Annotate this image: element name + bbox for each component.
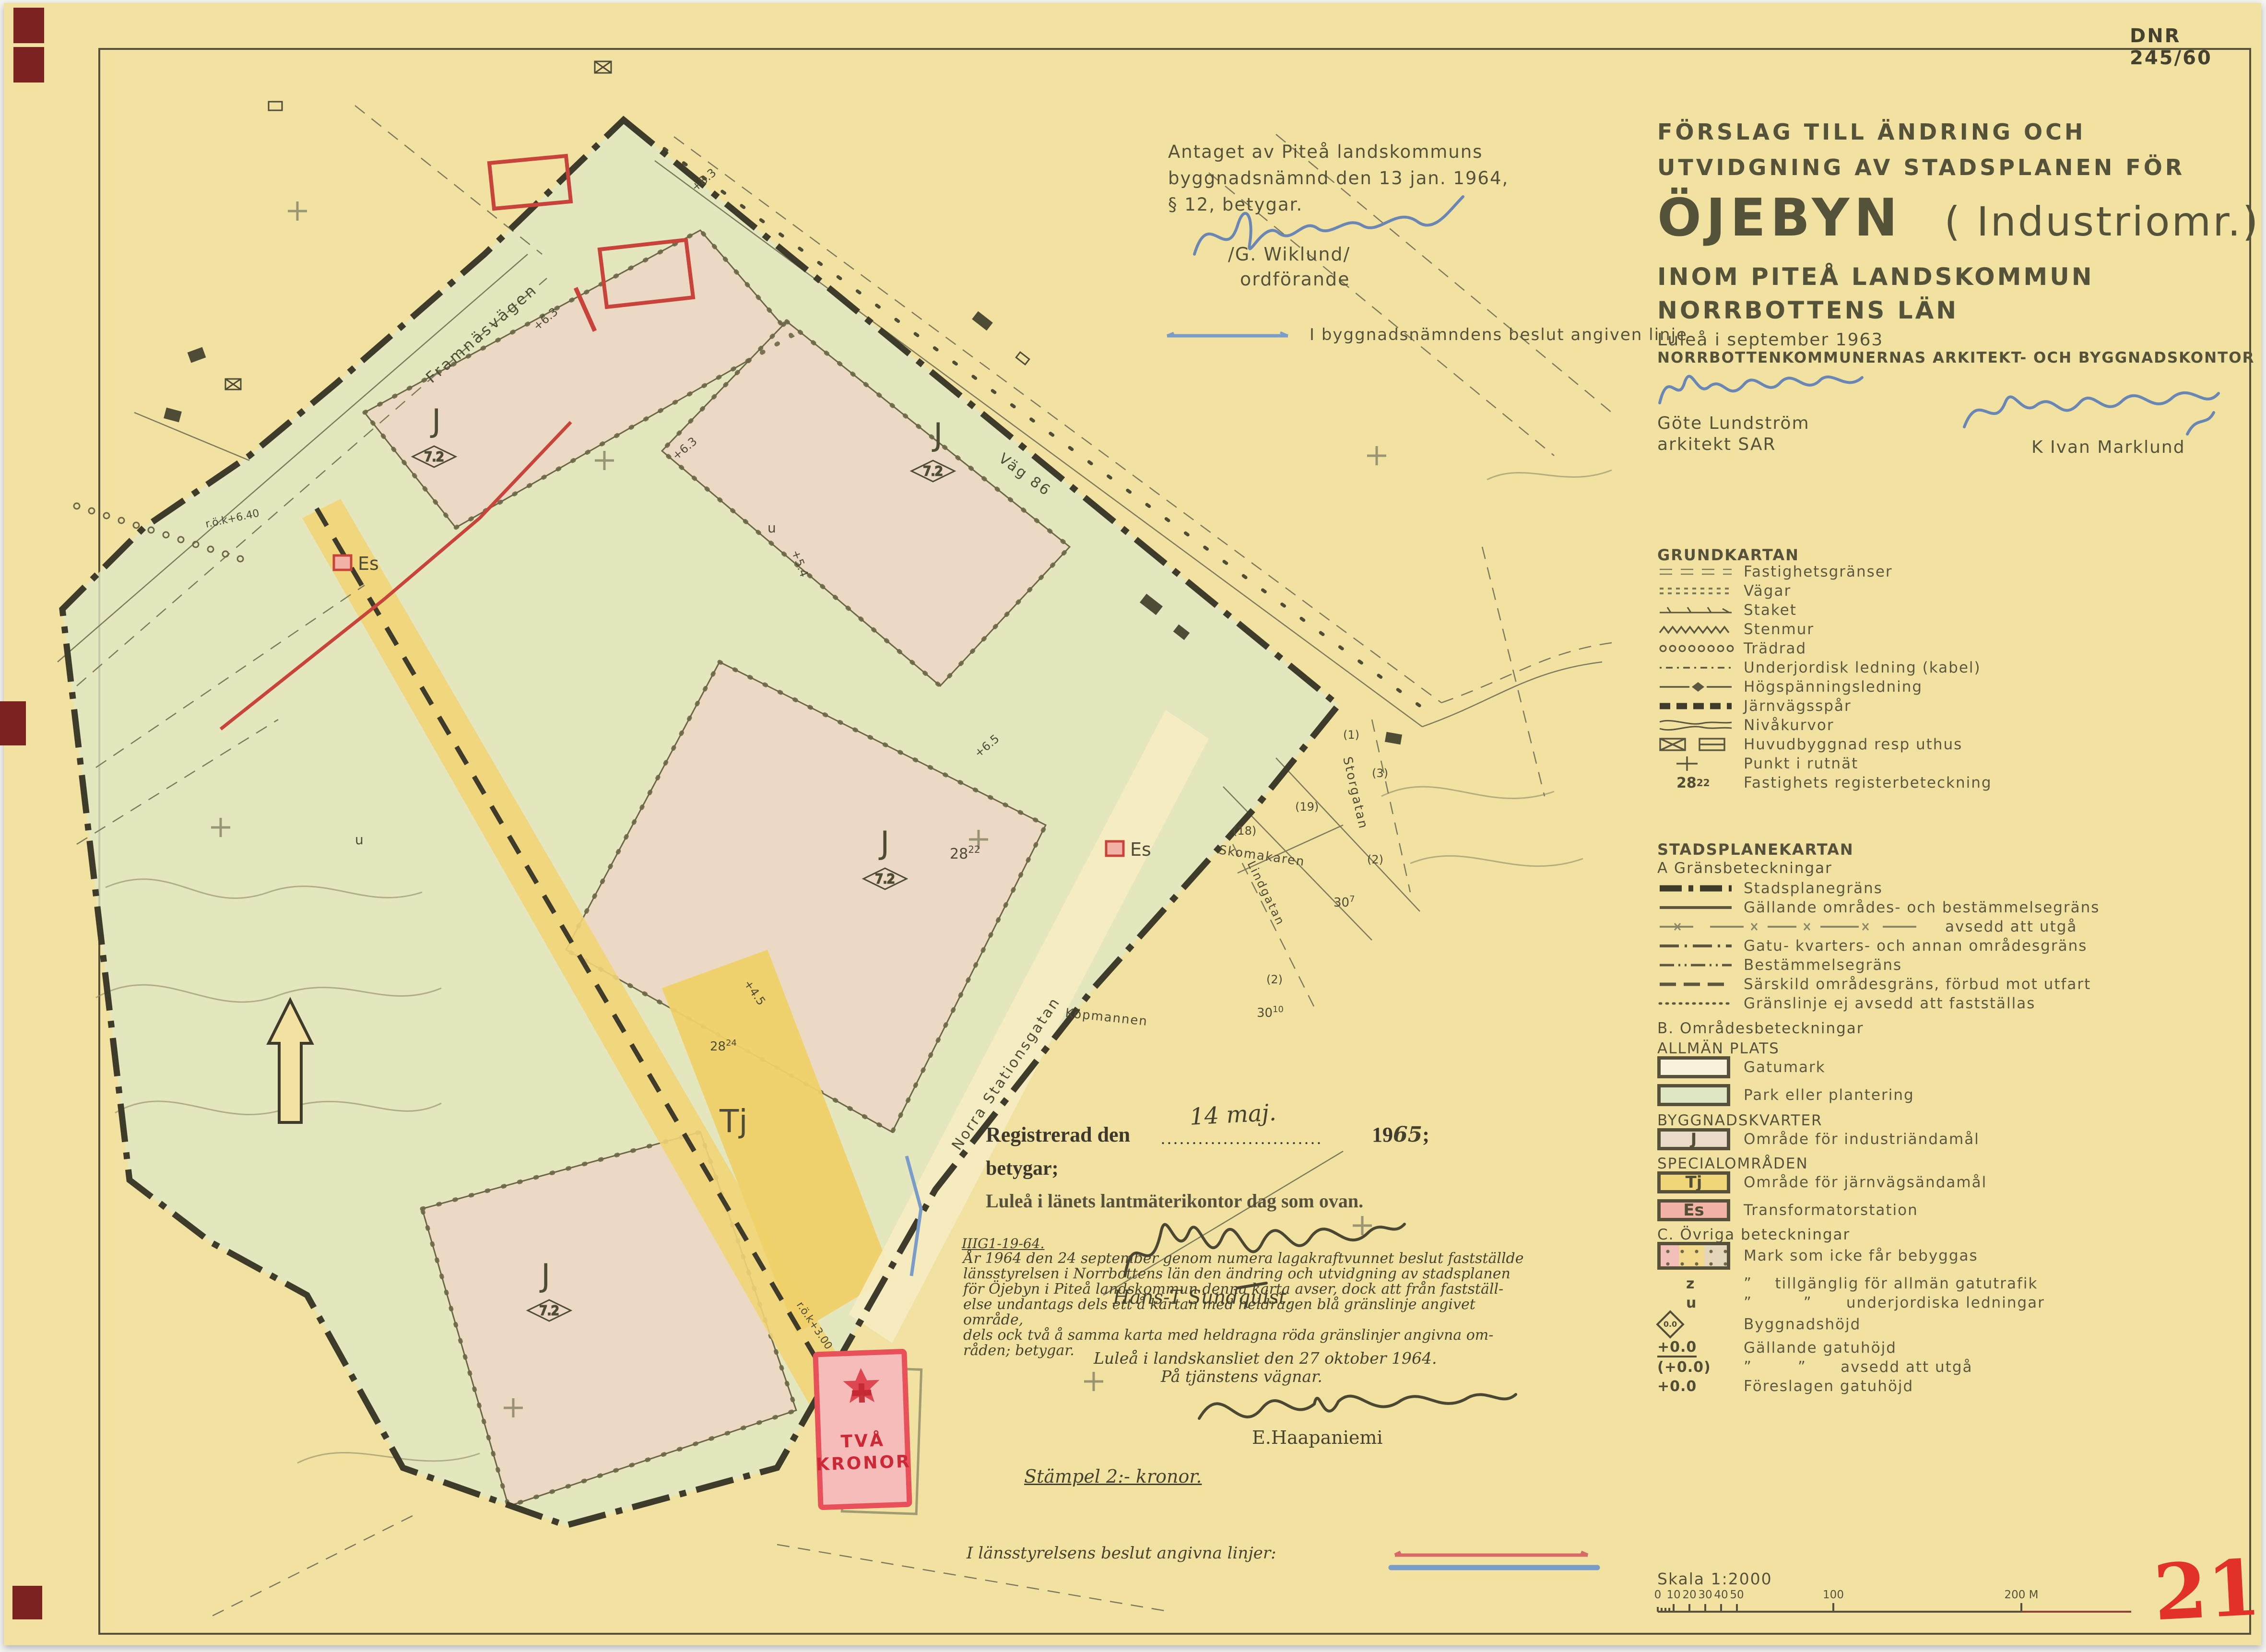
revenue-stamp: TVÅ KRONOR <box>813 1349 912 1510</box>
legend-row-prickmark: Mark som icke får bebyggas <box>1657 1241 1978 1270</box>
ls-lines-symbol <box>1386 1548 1607 1577</box>
svg-text:7.2: 7.2 <box>424 450 444 464</box>
gallande-grans-symbol <box>1657 900 1744 915</box>
decision-signer: E.Haapaniemi <box>1252 1427 1383 1448</box>
ls-lines-label: I länsstyrelsens beslut angivna linjer: <box>967 1544 1276 1563</box>
street-label-lindgatan: Lindgatan <box>1245 859 1288 928</box>
legend-row-huvudbyggnad: Huvudbyggnad resp uthus <box>1657 735 1962 754</box>
title-line-3: INOM PITEÅ LANDSKOMMUN <box>1657 263 2094 291</box>
decision-place-line: Luleå i landskansliet den 27 oktober 196… <box>1094 1349 1437 1368</box>
legend-row-registerbeteckning: 2822 Fastighets registerbeteckning <box>1657 773 1992 792</box>
legend-row-foreslagen-gatuhojd: +0.0 Föreslagen gatuhöjd <box>1657 1377 1913 1396</box>
hogspanning-symbol <box>1657 680 1744 694</box>
stamp-word-1: TVÅ <box>840 1429 885 1453</box>
district-label-j: J <box>932 416 943 453</box>
legend-row-granslinje-ej: Gränslinje ej avsedd att fastställas <box>1657 994 2035 1013</box>
title-line-1: FÖRSLAG TILL ÄNDRING OCH <box>1657 119 2086 145</box>
gatumark-swatch <box>1657 1056 1730 1078</box>
legend-special-heading: SPECIALOMRÅDEN <box>1657 1155 1808 1172</box>
legend-row-gatumark: Gatumark <box>1657 1055 1826 1079</box>
svg-text:7.2: 7.2 <box>875 872 895 886</box>
adoption-line-1: Antaget av Piteå landskommuns <box>1168 142 1483 162</box>
legend-row-fastighetsgranser: Fastighetsgränser <box>1657 562 1893 581</box>
tradrad-symbol <box>1657 641 1744 656</box>
scale-bar: 0 10 20 30 40 50 100 200 M <box>1654 1587 2138 1621</box>
parcel-number: (2) <box>1367 853 1383 866</box>
register-number: 3010 <box>1257 1004 1284 1020</box>
stamp-crest-icon <box>832 1363 891 1418</box>
svg-text:200 M: 200 M <box>2004 1589 2038 1601</box>
prickmark-swatch <box>1657 1242 1730 1270</box>
legend-row-stenmur: Stenmur <box>1657 620 1814 639</box>
svg-text:20: 20 <box>1682 1589 1696 1601</box>
legend-row-underjordisk-ledning: Underjordisk ledning (kabel) <box>1657 658 1981 677</box>
title-line-2: UTVIDGNING AV STADSPLANEN FÖR <box>1657 154 2185 180</box>
signature-haapaniemi <box>1190 1373 1525 1435</box>
legend-grund-title: GRUNDKARTAN <box>1657 546 1799 564</box>
legend-row-industri: J Område för industriändamål <box>1657 1127 1980 1151</box>
stamp-word-2: KRONOR <box>815 1451 911 1476</box>
legend-row-tradrad: Trädrad <box>1657 639 1806 658</box>
registration-mark <box>13 8 44 43</box>
z-symbol: z <box>1657 1275 1744 1292</box>
svg-text:7.2: 7.2 <box>923 464 943 479</box>
decision-paragraph: År 1964 den 24 september genom numera la… <box>963 1251 1539 1358</box>
legend-row-park: Park eller plantering <box>1657 1083 1914 1107</box>
legend-row-gallande-grans: Gällande områdes- och bestämmelsegräns <box>1657 898 2100 917</box>
vagar-symbol <box>1657 584 1744 598</box>
svg-text:7.2: 7.2 <box>539 1304 559 1318</box>
legend-row-punkt: Punkt i rutnät <box>1657 754 1858 773</box>
street-label-storgatan: Storgatan <box>1340 755 1370 831</box>
parcel-number: (3) <box>1372 767 1388 780</box>
kabel-symbol <box>1657 661 1744 675</box>
legend-bygg-heading: BYGGNADSKVARTER <box>1657 1112 1823 1129</box>
legend-a-heading: A Gränsbeteckningar <box>1657 860 1832 877</box>
jarnvag-swatch: Tj <box>1657 1171 1730 1193</box>
fastighetsgrans-symbol <box>1657 565 1744 579</box>
svg-text:50: 50 <box>1730 1589 1744 1601</box>
legend-row-jarnvagsspar: Järnvägsspår <box>1657 696 1852 716</box>
registration-mark <box>13 47 44 83</box>
sarskild-grans-symbol <box>1657 977 1744 991</box>
block-label-skomakaren: Skomakaren <box>1218 843 1306 869</box>
title-place-date: Luleå i september 1963 <box>1657 330 1883 350</box>
district-label-es: Es <box>1130 839 1151 860</box>
u-symbol: u <box>1657 1295 1744 1311</box>
block-label-kopmannen: Köpmannen <box>1064 1006 1148 1029</box>
district-label-tj: Tj <box>719 1103 748 1140</box>
bn-line-symbol <box>1163 330 1298 342</box>
svg-text:40: 40 <box>1714 1589 1728 1601</box>
legend-row-avsedd-utga: avsedd att utgå <box>1657 917 2166 936</box>
district-label-j: J <box>539 1257 550 1294</box>
register-number: 307 <box>1334 894 1355 910</box>
legend-row-byggnadshojd: 0.0 Byggnadshöjd <box>1657 1312 1861 1336</box>
rutnatspunkt-symbol <box>1657 755 1744 772</box>
sheet-number: 211 <box>2151 1539 2266 1638</box>
stadsplangrans-symbol <box>1657 881 1744 896</box>
registration-date-hand: 14 maj. <box>1189 1099 1277 1130</box>
parcel-number: (1) <box>1343 728 1359 742</box>
stenmur-symbol <box>1657 622 1744 637</box>
legend-row-gatuhojd-utga: (+0.0) ” ” avsedd att utgå <box>1657 1357 1973 1377</box>
legend-row-transformator: Es Transformatorstation <box>1657 1198 1918 1222</box>
legend-row-gallande-gatuhojd: +0.0 Gällande gatuhöjd <box>1657 1338 1897 1357</box>
avsedd-utga-symbol <box>1657 920 1945 934</box>
legend-row-bestammelsegrans: Bestämmelsegräns <box>1657 956 1902 975</box>
legend-b-heading: B. Områdesbeteckningar <box>1657 1020 1864 1037</box>
document-number: DNR 245/60 <box>2130 25 2266 69</box>
registration-mark <box>0 701 26 745</box>
registration-prefix: Registrerad den <box>986 1122 1130 1147</box>
adoption-signature-name: /G. Wiklund/ <box>1228 244 1350 265</box>
park-swatch <box>1657 1084 1730 1106</box>
bn-line-label: I byggnadsnämndens beslut angiven linje <box>1310 325 1688 344</box>
cosigner-name: K Ivan Marklund <box>2031 437 2185 457</box>
plan-name-suffix: ( Industriomr.) <box>1944 198 2260 245</box>
adoption-signer-role: ordförande <box>1240 269 1350 290</box>
legend-row-stadsplangrans: Stadsplanegräns <box>1657 879 1883 898</box>
byggnadshojd-symbol: 0.0 <box>1656 1310 1684 1338</box>
reference-number: IIIG1-19-64. <box>962 1236 1044 1251</box>
legend-c-heading: C. Övriga beteckningar <box>1657 1226 1850 1243</box>
legend-plan-title: STADSPLANEKARTAN <box>1657 840 1854 859</box>
plan-name-main: ÖJEBYN <box>1657 188 1902 248</box>
legend-row-vagar: Vägar <box>1657 581 1791 601</box>
svg-text:0: 0 <box>1654 1589 1662 1601</box>
legend-row-hogspanning: Högspänningsledning <box>1657 677 1923 696</box>
svg-text:30: 30 <box>1698 1589 1712 1601</box>
transformator-swatch: Es <box>1657 1199 1730 1221</box>
svg-text:10: 10 <box>1666 1589 1680 1601</box>
jarnvag-symbol <box>1657 699 1744 713</box>
legend-row-sarskild-grans: Särskild områdesgräns, förbud mot utfart <box>1657 975 2091 994</box>
registration-year: 1965; <box>1372 1122 1429 1147</box>
legend-row-u: u ” ” underjordiska ledningar <box>1657 1293 2045 1312</box>
parcel-number: (2) <box>1266 973 1283 986</box>
legend-row-nivakurvor: Nivåkurvor <box>1657 716 1834 735</box>
gatuhojd-utga-symbol: (+0.0) <box>1657 1359 1744 1376</box>
industri-swatch: J <box>1657 1128 1730 1150</box>
byggnad-symbol <box>1657 736 1744 753</box>
u-marker: u <box>767 520 776 536</box>
u-marker: u <box>355 832 364 848</box>
svg-text:100: 100 <box>1823 1589 1844 1601</box>
registration-mark <box>12 1586 42 1619</box>
legend-row-jarnvagsandamal: Tj Område för järnvägsändamål <box>1657 1170 1987 1194</box>
district-label-es: Es <box>358 553 379 574</box>
district-label-j: J <box>430 402 441 439</box>
architect-name: Göte Lundström <box>1657 413 1810 433</box>
registration-betygar: betygar; <box>986 1157 1059 1180</box>
parcel-number: (19) <box>1295 800 1319 814</box>
signature-marklund <box>1957 369 2226 441</box>
plan-name: ÖJEBYN ( Industriomr.) <box>1657 188 2260 248</box>
nivakurvor-symbol <box>1657 717 1744 733</box>
registration-dots: .......................... <box>1161 1128 1323 1148</box>
bestammelsegrans-symbol <box>1657 958 1744 972</box>
foreslagen-gatuhojd-symbol: +0.0 <box>1657 1378 1744 1395</box>
parcel-number: (18) <box>1233 824 1256 838</box>
granslinje-ej-symbol <box>1657 996 1744 1011</box>
legend-row-gatugrans: Gatu- kvarters- och annan områdesgräns <box>1657 936 2087 956</box>
title-line-4: NORRBOTTENS LÄN <box>1657 296 1959 324</box>
staket-symbol <box>1657 603 1744 617</box>
legend-allman-heading: ALLMÄN PLATS <box>1657 1040 1780 1057</box>
stamp-note: Stämpel 2:- kronor. <box>1024 1466 1202 1487</box>
legend-row-staket: Staket <box>1657 601 1797 620</box>
gatugrans-symbol <box>1657 939 1744 953</box>
scale-label: Skala 1:2000 <box>1657 1569 1772 1588</box>
scanned-plan-sheet: DNR 245/60 <box>0 0 2266 1652</box>
district-label-j: J <box>878 825 889 861</box>
signature-lundstrom <box>1655 357 1880 413</box>
registernummer-symbol: 2822 <box>1657 775 1744 791</box>
gatuhojd-symbol: +0.0 <box>1657 1339 1744 1357</box>
legend-row-z: z ” tillgänglig för allmän gatutrafik <box>1657 1274 2038 1293</box>
architect-title: arkitekt SAR <box>1657 435 1776 454</box>
